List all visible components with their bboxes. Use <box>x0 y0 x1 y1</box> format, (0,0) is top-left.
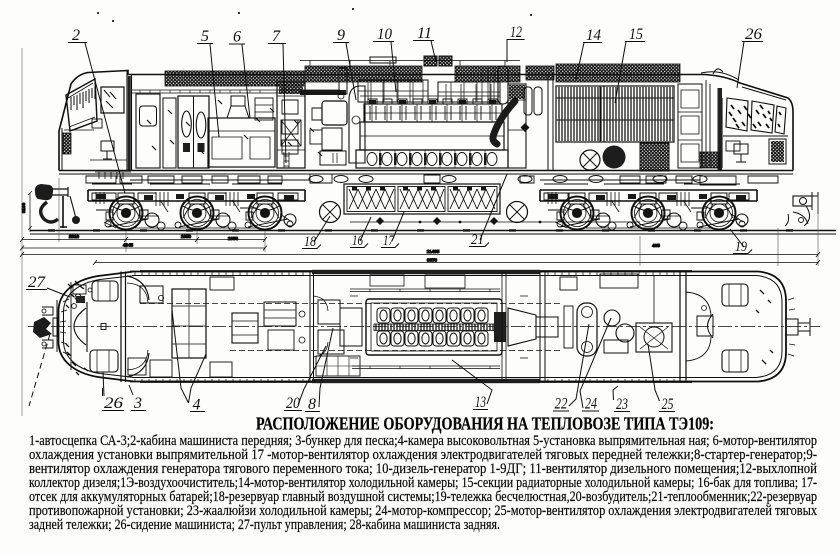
svg-text:25: 25 <box>662 396 674 413</box>
svg-text:26: 26 <box>745 26 762 43</box>
svg-text:4345: 4345 <box>123 243 134 248</box>
svg-text:4: 4 <box>193 397 201 414</box>
svg-text:РАСПОЛОЖЕНИЕ ОБОРУДОВАНИЯ НА Т: РАСПОЛОЖЕНИЕ ОБОРУДОВАНИЯ НА ТЕПЛОВОЗЕ Т… <box>256 414 714 434</box>
svg-text:17: 17 <box>383 233 395 249</box>
svg-text:2310: 2310 <box>69 234 80 239</box>
svg-text:задней тележки; 26-сидение маш: задней тележки; 26-сидение машиниста; 27… <box>29 517 500 533</box>
svg-text:7: 7 <box>272 28 281 45</box>
svg-text:10: 10 <box>377 26 392 43</box>
svg-text:9: 9 <box>337 27 345 44</box>
svg-text:5: 5 <box>201 28 209 45</box>
svg-text:8073: 8073 <box>427 258 438 263</box>
svg-text:22: 22 <box>555 396 568 413</box>
svg-text:13: 13 <box>475 394 486 411</box>
svg-text:8: 8 <box>308 396 316 413</box>
svg-text:20: 20 <box>286 395 300 412</box>
svg-text:3100: 3100 <box>21 202 26 213</box>
svg-text:15: 15 <box>629 26 643 43</box>
svg-text:19: 19 <box>735 239 747 255</box>
svg-text:3: 3 <box>133 395 142 412</box>
svg-text:16: 16 <box>352 233 363 249</box>
svg-text:2: 2 <box>72 27 80 44</box>
svg-text:485: 485 <box>652 243 660 248</box>
svg-text:11: 11 <box>417 25 432 42</box>
svg-text:14: 14 <box>586 27 601 44</box>
svg-text:26: 26 <box>104 395 123 412</box>
svg-text:24: 24 <box>585 396 597 413</box>
svg-text:1850: 1850 <box>228 236 239 241</box>
svg-text:6: 6 <box>233 29 241 46</box>
svg-text:23: 23 <box>616 396 628 413</box>
svg-text:27: 27 <box>28 274 46 291</box>
svg-text:12: 12 <box>510 24 522 41</box>
svg-text:1850: 1850 <box>181 234 192 239</box>
svg-text:11485: 11485 <box>427 249 440 254</box>
